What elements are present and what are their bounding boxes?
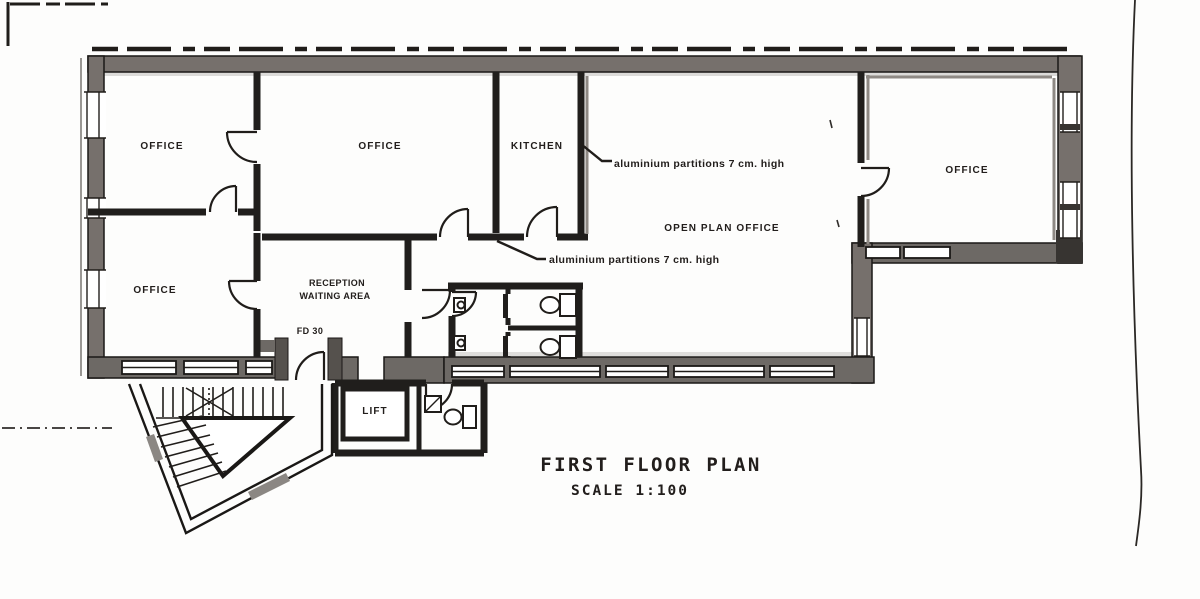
drawing-title: FIRST FLOOR PLAN	[540, 454, 761, 476]
room-label-reception-line2: WAITING AREA	[300, 291, 371, 301]
room-label-office-right: OFFICE	[945, 165, 988, 176]
window	[84, 92, 106, 138]
drawing-scale: SCALE 1:100	[571, 483, 689, 499]
room-label-office-top-left: OFFICE	[140, 141, 183, 152]
window	[84, 270, 106, 308]
stair-treads-upper	[156, 387, 289, 418]
door	[527, 207, 557, 237]
partition-annotation-upper: aluminium partitions 7 cm. high	[614, 158, 785, 170]
window	[866, 247, 900, 258]
window	[1060, 92, 1080, 132]
room-label-office-bottom-left: OFFICE	[133, 285, 176, 296]
wash-basin	[454, 336, 465, 350]
partition-annotation-lower: aluminium partitions 7 cm. high	[549, 254, 720, 266]
toilet	[541, 294, 577, 316]
wash-basin	[425, 396, 441, 412]
room-label-reception-line1: RECEPTION	[309, 278, 365, 288]
window-strip	[122, 361, 272, 374]
window	[1060, 182, 1080, 238]
page-fold-line	[1132, 0, 1142, 546]
annotation-leaders	[497, 144, 612, 259]
room-label-lift: LIFT	[362, 406, 388, 417]
room-label-open-plan-office: OPEN PLAN OFFICE	[664, 223, 779, 234]
toilet	[445, 406, 477, 428]
room-label-kitchen: KITCHEN	[511, 141, 563, 152]
wash-basin	[454, 298, 465, 312]
door	[422, 290, 450, 318]
door	[861, 168, 889, 196]
room-label-office-middle: OFFICE	[358, 141, 401, 152]
window-strip	[452, 366, 834, 377]
stairwell	[129, 384, 332, 533]
window	[904, 247, 950, 258]
window	[854, 318, 870, 356]
door	[210, 186, 236, 212]
fire-door-label: FD 30	[297, 326, 324, 336]
door	[229, 281, 257, 309]
door	[227, 132, 257, 162]
entrance-fire-door	[296, 352, 324, 380]
door	[440, 209, 468, 237]
floor-plan-drawing: OFFICE OFFICE KITCHEN OFFICE OPEN PLAN O…	[0, 0, 1200, 599]
floor-plan-page: OFFICE OFFICE KITCHEN OFFICE OPEN PLAN O…	[0, 0, 1200, 599]
